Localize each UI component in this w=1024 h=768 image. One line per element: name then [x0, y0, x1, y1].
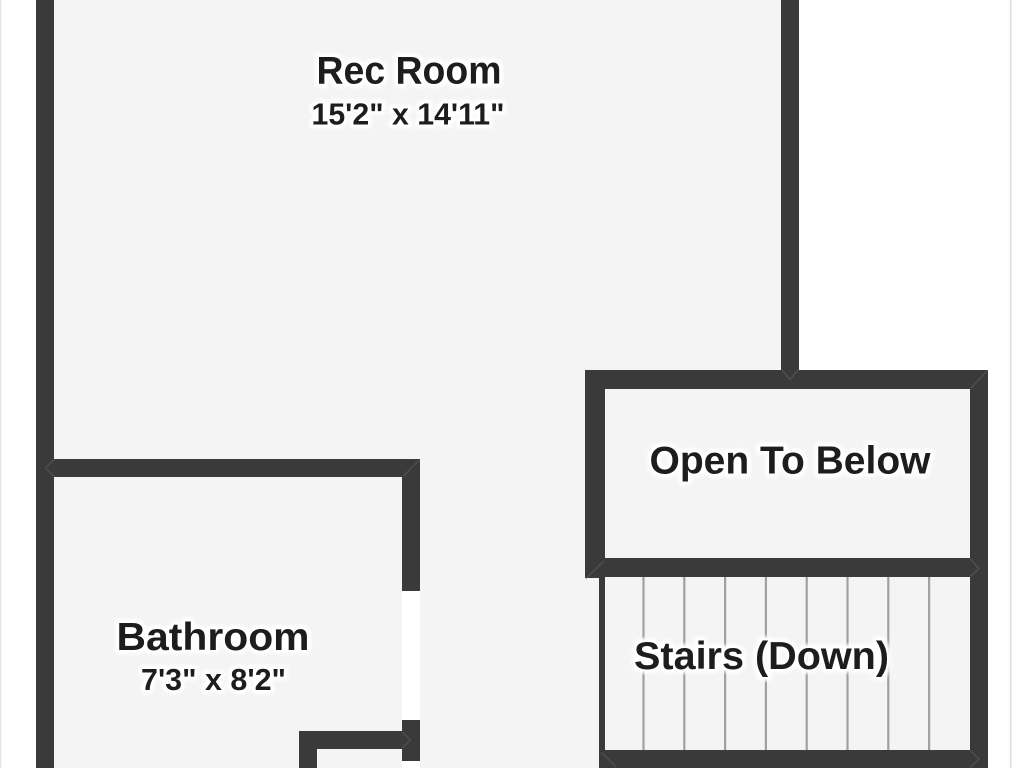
- svg-text:Rec Room: Rec Room: [317, 50, 502, 93]
- svg-text:Open To Below: Open To Below: [650, 440, 932, 483]
- svg-text:Stairs (Down): Stairs (Down): [634, 635, 889, 678]
- svg-text:15'2" x 14'11": 15'2" x 14'11": [312, 97, 505, 132]
- svg-text:7'3" x 8'2": 7'3" x 8'2": [141, 662, 286, 697]
- svg-text:Bathroom: Bathroom: [117, 616, 310, 659]
